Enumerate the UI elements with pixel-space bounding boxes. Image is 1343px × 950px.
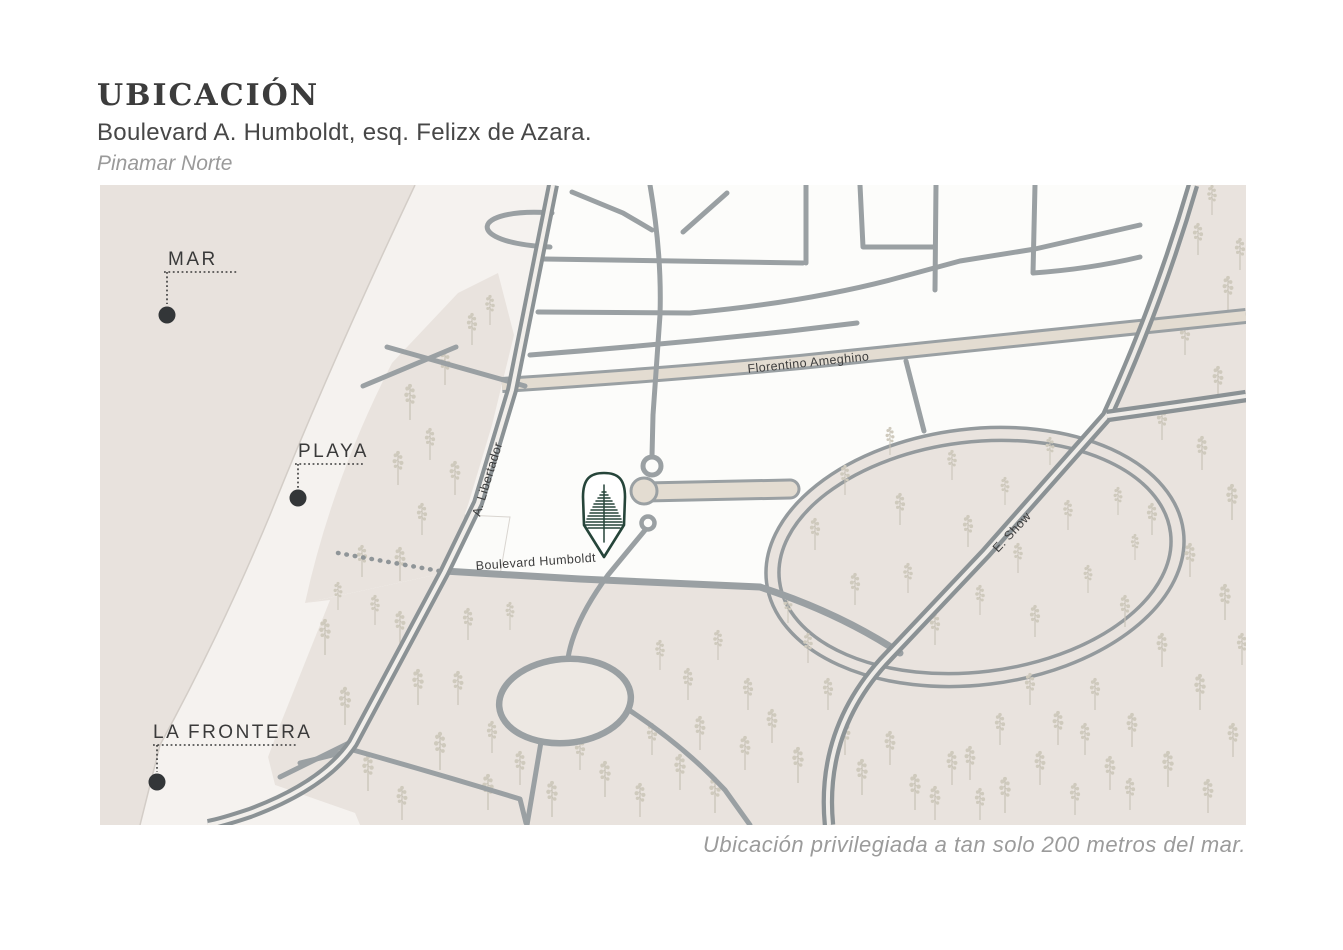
svg-text:PLAYA: PLAYA [298, 441, 369, 462]
mini-roundabout [642, 517, 655, 530]
la-frontera-dot [149, 774, 166, 791]
map-canvas: MAR PLAYA LA FRONTERA A. Libertador Flor… [100, 185, 1246, 825]
page-title: UBICACIÓN [97, 78, 592, 113]
svg-text:MAR: MAR [168, 249, 218, 270]
brochure-page: UBICACIÓN Boulevard A. Humboldt, esq. Fe… [0, 0, 1343, 950]
playa-dot [290, 490, 307, 507]
svg-text:LA FRONTERA: LA FRONTERA [153, 722, 312, 743]
header: UBICACIÓN Boulevard A. Humboldt, esq. Fe… [97, 78, 592, 176]
mar-dot [159, 307, 176, 324]
location-map: MAR PLAYA LA FRONTERA A. Libertador Flor… [100, 185, 1246, 825]
cul-de-sac [643, 457, 661, 475]
address-subtitle: Boulevard A. Humboldt, esq. Felizx de Az… [97, 119, 592, 147]
tagline: Ubicación privilegiada a tan solo 200 me… [703, 832, 1246, 858]
area-name: Pinamar Norte [97, 152, 592, 176]
